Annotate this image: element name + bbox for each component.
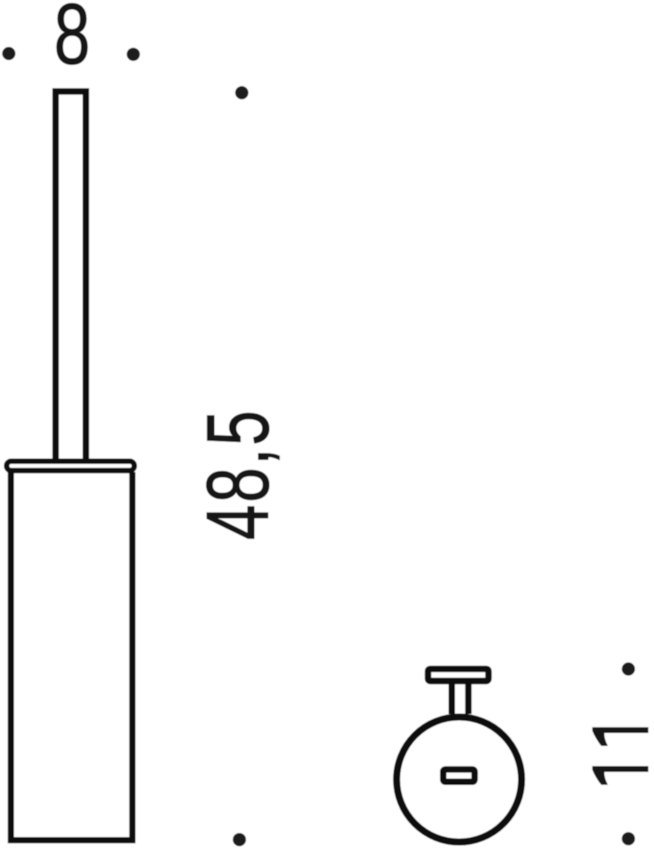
svg-text:48,5: 48,5 [190, 410, 288, 540]
svg-text:8: 8 [54, 0, 90, 83]
